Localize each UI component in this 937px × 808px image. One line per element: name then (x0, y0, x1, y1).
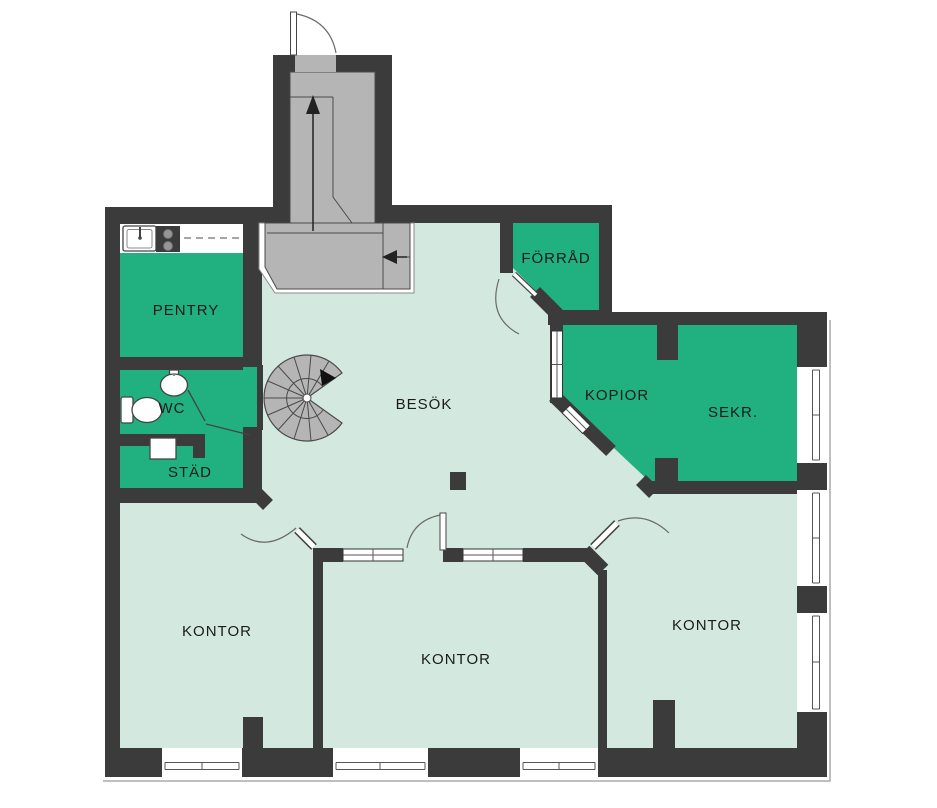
wall-bottom-3 (428, 748, 520, 777)
wall-kontor-mid-east (598, 570, 607, 748)
toilet (121, 397, 162, 423)
kitchen-sink (123, 226, 156, 251)
window (797, 613, 825, 712)
wall-forrad-left (500, 223, 513, 273)
wall-bottom-4 (598, 748, 827, 777)
window (552, 331, 563, 398)
column-kontor-left (243, 717, 263, 748)
room-label-besok: BESÖK (396, 395, 453, 413)
floorplan-canvas: PENTRY WC STÄD BESÖK FÖRRÅD KOPIOR SEKR.… (0, 0, 937, 808)
door-leaf-kontor-middle (440, 513, 446, 550)
window (520, 748, 598, 774)
stove (156, 226, 180, 252)
wall-stub-bottom (655, 458, 678, 487)
window (162, 748, 242, 774)
wall-right-2 (797, 463, 827, 490)
wall-forrad-right (599, 223, 612, 312)
stair-door-gap (295, 55, 336, 72)
room-label-kontor-right: KONTOR (672, 617, 742, 634)
wall-stad-south (105, 488, 256, 503)
window (343, 549, 403, 561)
window (797, 367, 825, 463)
wall-mk-top-3 (523, 548, 587, 562)
room-label-kontor-middle: KONTOR (421, 651, 491, 668)
column-kontor-right (653, 700, 675, 748)
wall-top-left (105, 207, 273, 224)
wall-stair-top-a (273, 55, 295, 72)
room-label-wc: WC (159, 400, 186, 417)
wall-bottom-1 (105, 748, 162, 777)
wall-right-3 (797, 586, 827, 613)
window (333, 748, 428, 774)
door-leaf-stairwell (291, 12, 297, 55)
wall-kontor-left-east (313, 548, 323, 748)
spiral-staircase-post (303, 394, 311, 402)
wall-stair-left (273, 55, 290, 224)
wall-bottom-2 (242, 748, 333, 777)
room-label-forrad: FÖRRÅD (521, 249, 590, 267)
cleaning-sink (150, 438, 176, 459)
wall-north-mid (392, 205, 612, 223)
wall-stub-top (657, 325, 678, 360)
wall-wc-jamb (193, 434, 205, 458)
window (797, 490, 825, 586)
wall-kopior-diagonal-cap (641, 480, 654, 493)
room-label-pentry: PENTRY (153, 302, 220, 319)
wall-wc-top (120, 357, 243, 370)
room-label-stad: STÄD (168, 464, 212, 481)
wall-wc-right-low (243, 427, 262, 495)
wall-right-1 (797, 325, 827, 367)
wall-stair-right (375, 55, 392, 223)
room-label-kontor-left: KONTOR (182, 623, 252, 640)
column-besok (450, 472, 466, 490)
floorplan: PENTRY WC STÄD BESÖK FÖRRÅD KOPIOR SEKR.… (0, 0, 937, 808)
room-label-sekr: SEKR. (708, 404, 758, 421)
wall-vestibule-thin (257, 365, 263, 430)
window (463, 549, 523, 561)
wall-east-top (599, 312, 827, 325)
room-label-kopior: KOPIOR (585, 387, 649, 404)
floor-pentry-wc-stad (115, 222, 243, 490)
floor-wc-vestibule (243, 363, 258, 432)
